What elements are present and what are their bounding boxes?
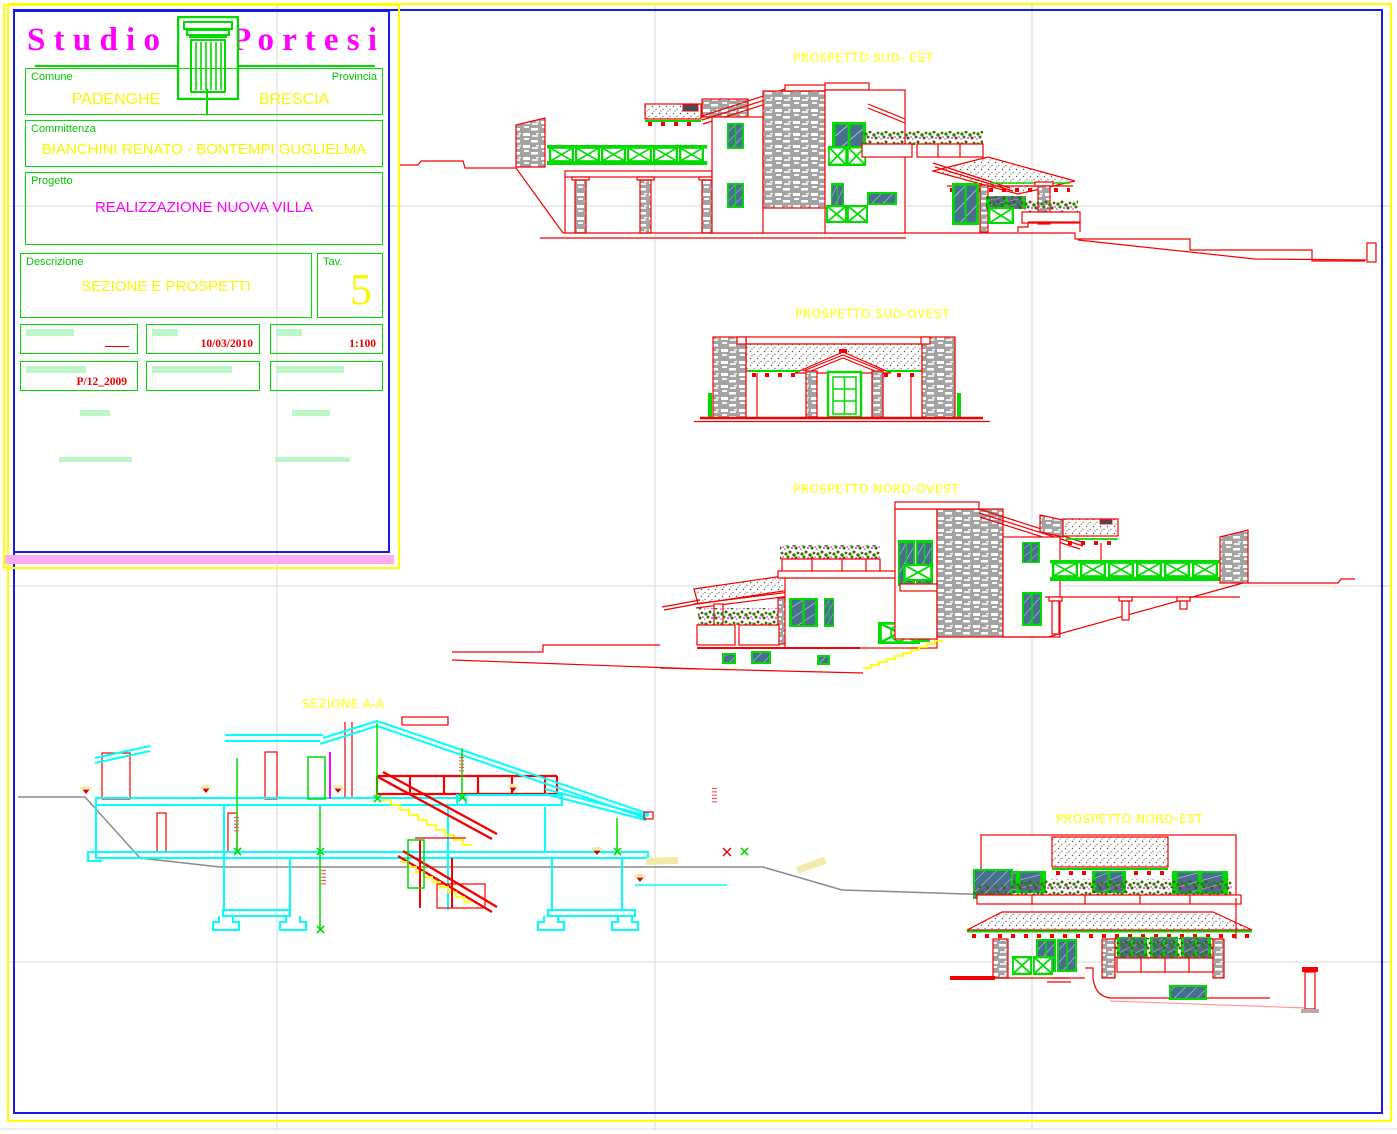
- terrace-slab: [977, 895, 1241, 904]
- terrace-plants: [982, 879, 1232, 895]
- pergola-right: [933, 157, 1080, 232]
- date-value: 10/03/2010: [201, 338, 253, 350]
- studio-name-right: P o r t e s i: [231, 22, 377, 59]
- window: [790, 599, 817, 626]
- scale-box: 1:100: [270, 324, 383, 354]
- cut-structure-cyan: [88, 721, 727, 930]
- redacted-label: [276, 366, 344, 373]
- label-prospetto-nord-est: PROSPETTO NORD-EST: [1056, 812, 1203, 826]
- redacted-label: [152, 329, 178, 336]
- frame-lines-green: [234, 723, 748, 933]
- window: [728, 184, 744, 208]
- protocol-box: P/12_2009: [20, 361, 138, 391]
- right-wing: [979, 509, 1355, 637]
- window: [824, 599, 833, 626]
- comune-value: PADENGHE: [26, 91, 206, 109]
- terrace-x-railing: [547, 145, 707, 165]
- meta-box-3: [270, 361, 383, 391]
- background-elevation-red: [102, 717, 448, 852]
- elevation-nord-est: [950, 835, 1319, 1013]
- redacted-label: [152, 366, 232, 373]
- label-prospetto-sud-est: PROSPETTO SUD- EST: [793, 51, 934, 65]
- label-prospetto-sud-ovest: PROSPETTO SUD-OVEST: [795, 307, 950, 321]
- progetto-label: Progetto: [31, 175, 73, 187]
- roof-terrace-planters: [862, 131, 983, 157]
- descrizione-value: SEZIONE E PROSPETTI: [21, 278, 311, 295]
- stone-pier-left: [713, 337, 746, 418]
- redacted-label: [26, 329, 74, 336]
- title-block-pink-bar: [5, 555, 394, 564]
- tav-number: 5: [350, 264, 372, 315]
- comune-label: Comune: [31, 71, 73, 83]
- dash-value: [105, 346, 129, 347]
- provincia-value: BRESCIA: [206, 91, 382, 109]
- label-sezione-a-a: SEZIONE A-A: [302, 697, 385, 711]
- elevation-nord-ovest: [452, 502, 1355, 673]
- label-prospetto-nord-ovest: PROSPETTO NORD-OVEST: [793, 482, 959, 496]
- terrain-line-left: [400, 161, 563, 233]
- redacted-label: [276, 329, 302, 336]
- committenza-box: Committenza BIANCHINI RENATO - BONTEMPI …: [25, 120, 383, 167]
- window: [728, 124, 744, 149]
- redacted-text: [80, 410, 110, 416]
- terrain-profile: [18, 797, 1090, 898]
- committenza-label: Committenza: [31, 123, 96, 135]
- meta-box-2: [146, 361, 260, 391]
- drawing-sheet: PROSPETTO SUD- EST PROSPETTO SUD-OVEST P…: [0, 0, 1397, 1134]
- descrizione-box: Descrizione SEZIONE E PROSPETTI: [20, 253, 312, 318]
- loggia-columns: [565, 171, 715, 233]
- section-a-a: [18, 717, 1090, 933]
- terrain-left: [452, 645, 660, 652]
- date-box: 10/03/2010: [146, 324, 260, 354]
- porch-roof: [967, 912, 1252, 936]
- meta-box-1: [20, 324, 138, 354]
- scale-value: 1:100: [349, 338, 376, 350]
- studio-name-left: S t u d i o: [27, 22, 160, 59]
- stone-pier: [516, 118, 545, 167]
- tower-block: [895, 502, 1003, 639]
- base-mid-wing: [660, 648, 863, 673]
- redacted-text: [59, 457, 132, 462]
- stone-pier-right: [922, 337, 955, 418]
- terrain-terraces-right: [563, 233, 1365, 261]
- provincia-label: Provincia: [332, 71, 377, 83]
- committenza-value: BIANCHINI RENATO - BONTEMPI GUGLIELMA: [26, 141, 382, 158]
- progetto-box: Progetto REALIZZAZIONE NUOVA VILLA: [25, 172, 383, 245]
- tav-label: Tav.: [323, 256, 342, 268]
- redacted-text: [292, 410, 330, 416]
- protocol-value: P/12_2009: [77, 376, 127, 388]
- tav-box: Tav. 5: [317, 253, 383, 318]
- stone-tower: [763, 91, 825, 208]
- ground-floor: [993, 898, 1236, 982]
- redacted-label: [26, 366, 86, 373]
- title-block: S t u d i o P o r t e s i Comune Provinc…: [3, 4, 400, 569]
- redacted-text: [275, 457, 350, 462]
- progetto-value: REALIZZAZIONE NUOVA VILLA: [26, 199, 382, 216]
- entry-door: [828, 372, 861, 417]
- elevation-sud-ovest: [694, 337, 990, 422]
- comune-provincia-box: Comune Provincia PADENGHE BRESCIA: [25, 68, 383, 115]
- elevation-sud-est: [400, 83, 1376, 262]
- descrizione-label: Descrizione: [26, 256, 83, 268]
